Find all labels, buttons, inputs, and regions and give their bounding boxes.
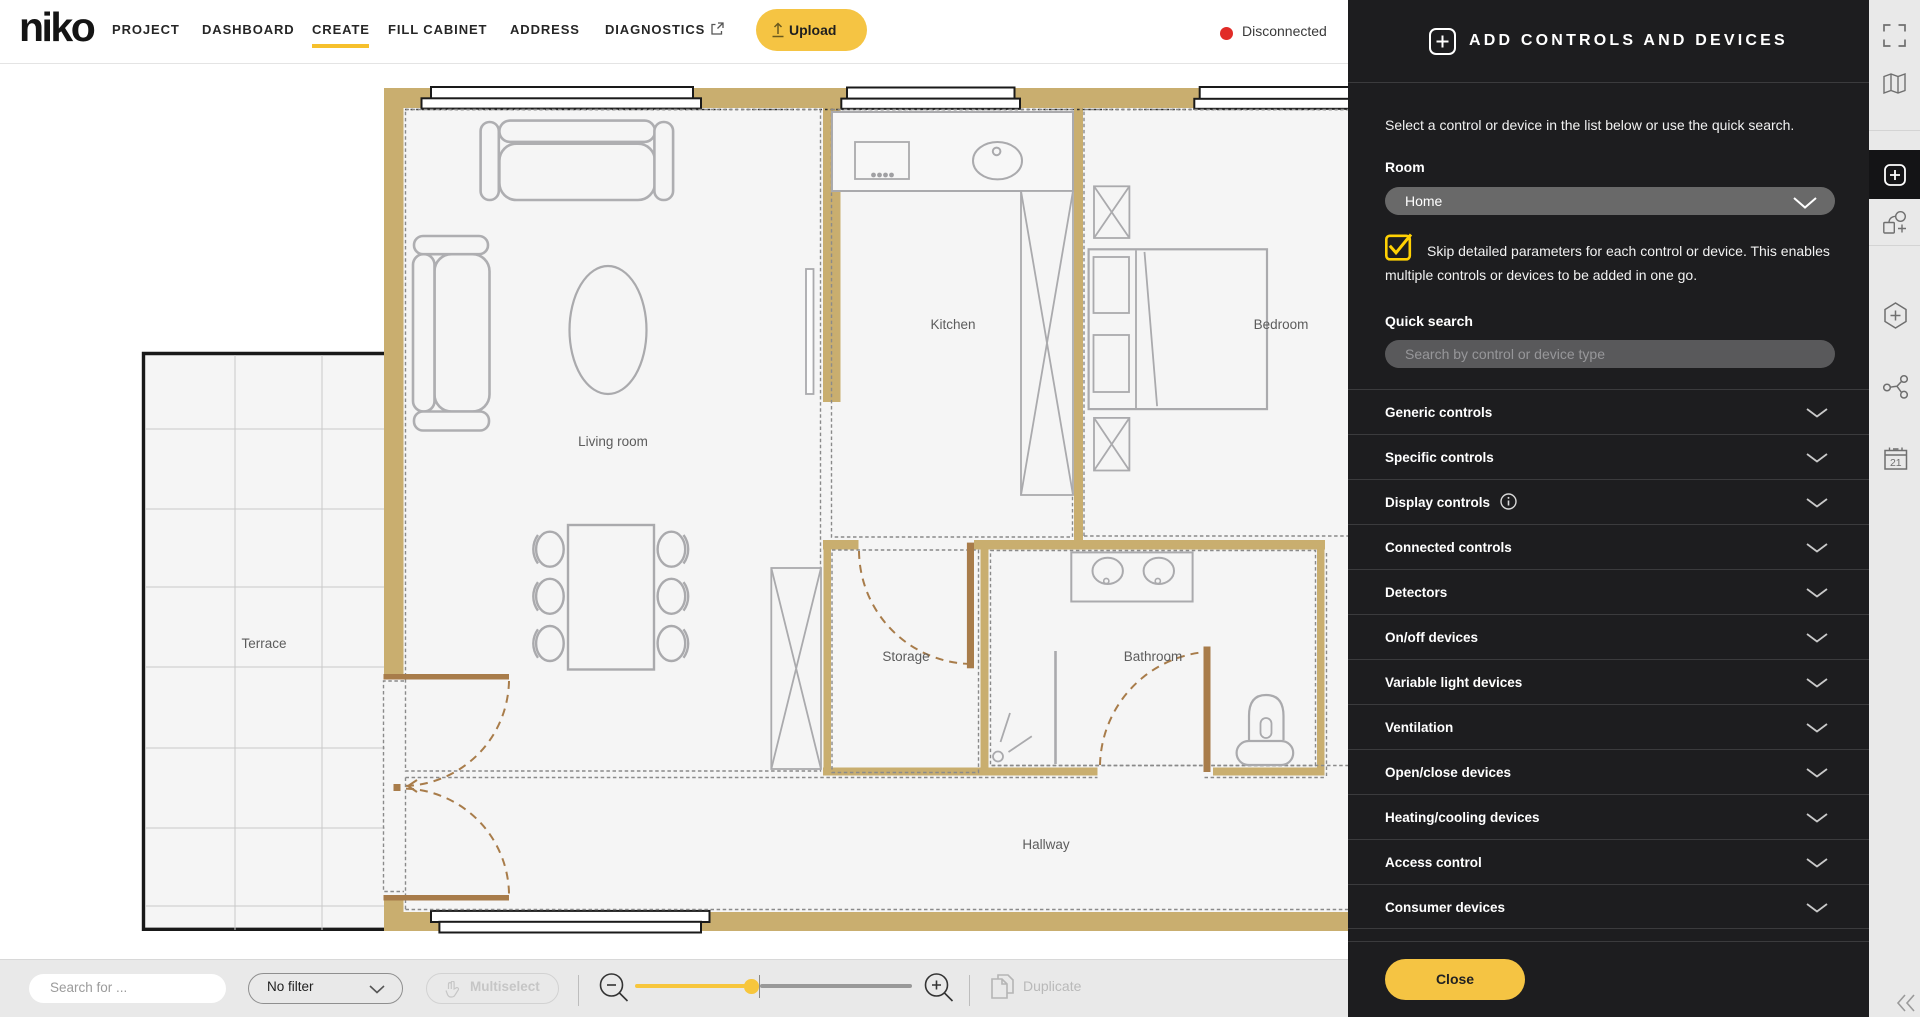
svg-text:21: 21 (1890, 457, 1902, 469)
svg-text:Storage: Storage (882, 649, 929, 664)
svg-text:Living room: Living room (578, 434, 648, 449)
svg-text:Bedroom: Bedroom (1254, 317, 1309, 332)
svg-text:Hallway: Hallway (1022, 837, 1070, 852)
svg-text:Kitchen: Kitchen (930, 317, 975, 332)
svg-text:Terrace: Terrace (241, 636, 286, 651)
svg-text:Bathroom: Bathroom (1124, 649, 1183, 664)
